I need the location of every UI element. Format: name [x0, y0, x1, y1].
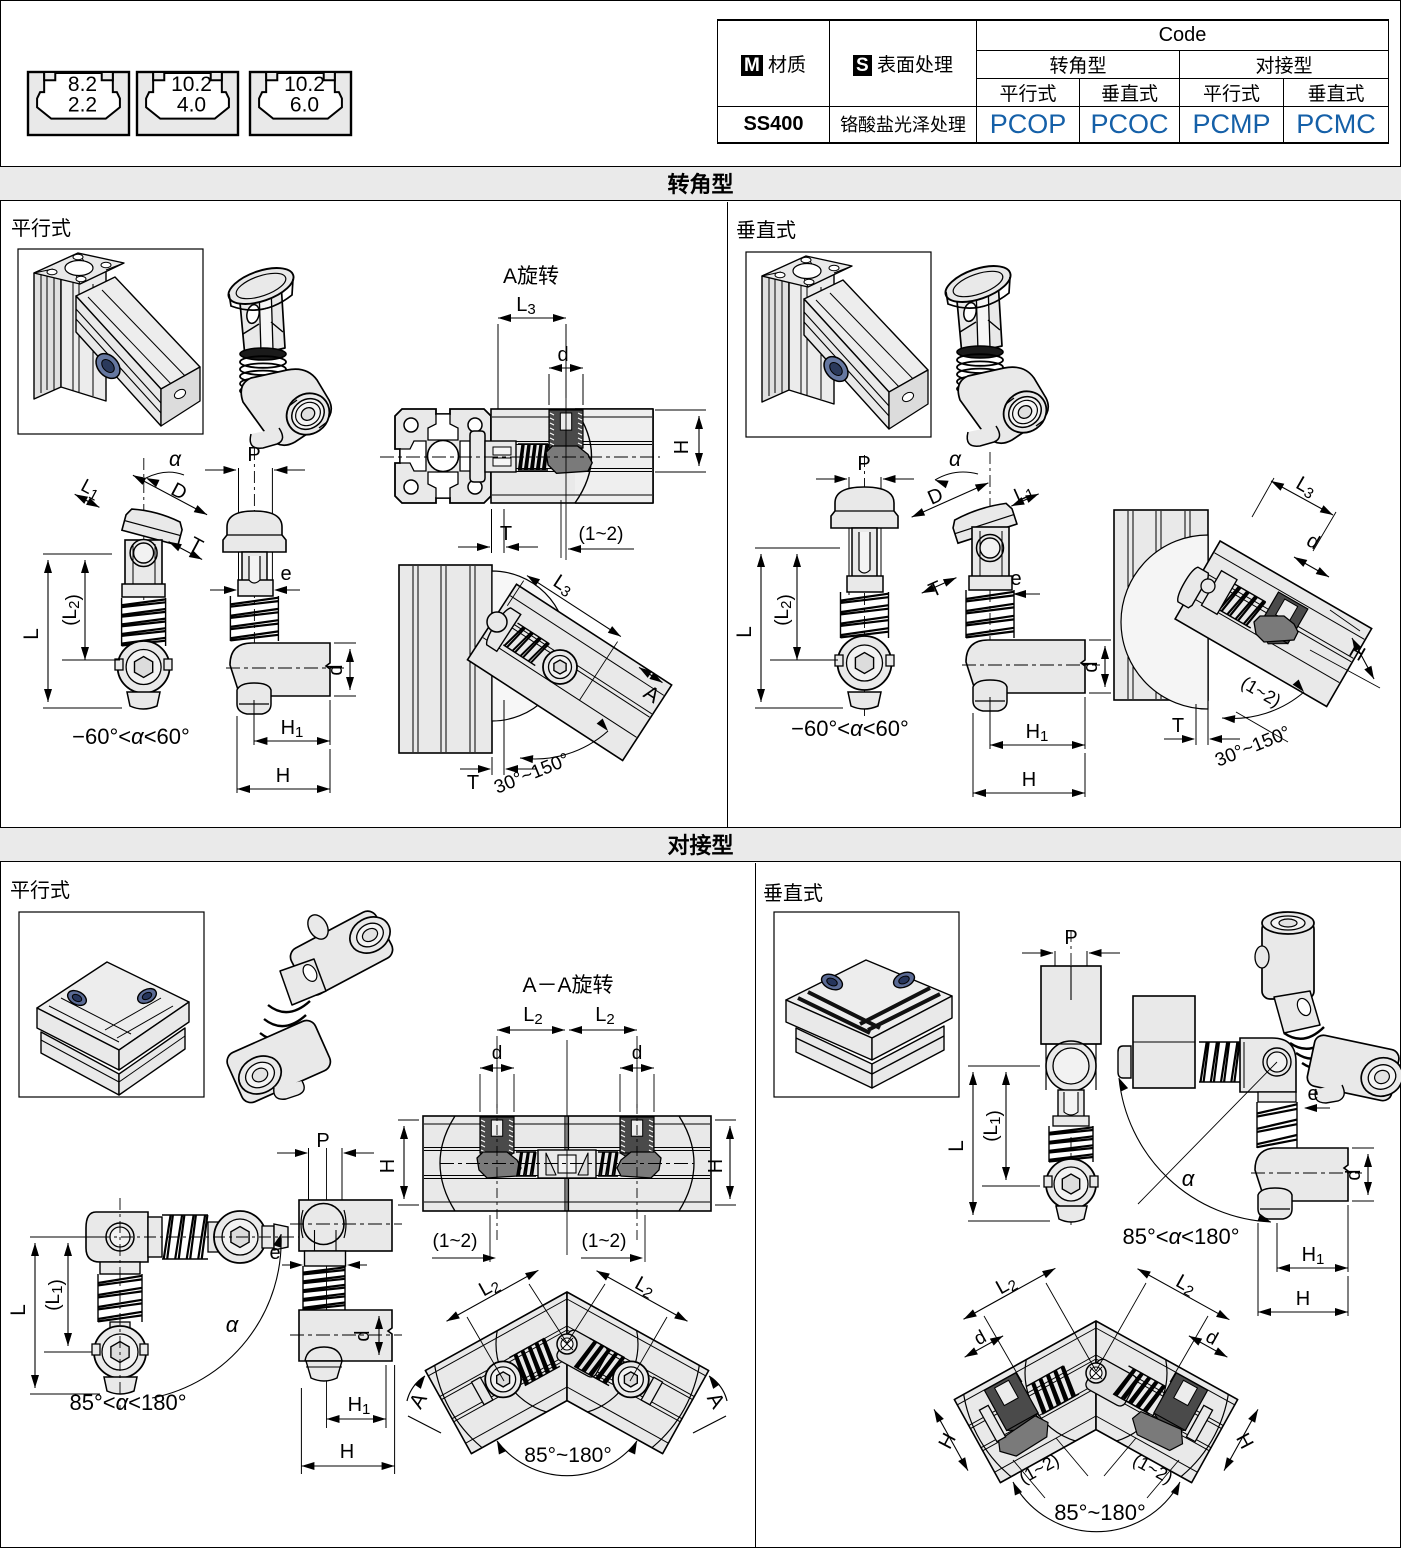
svg-text:α: α: [226, 1312, 240, 1337]
svg-text:T: T: [500, 523, 512, 545]
svg-text:d: d: [352, 1330, 374, 1341]
svg-text:85°<α<180°: 85°<α<180°: [69, 1390, 186, 1415]
svg-text:85°~180°: 85°~180°: [1054, 1500, 1146, 1525]
svg-text:10.2: 10.2: [284, 73, 325, 96]
svg-text:L2: L2: [475, 1272, 504, 1302]
svg-text:L2: L2: [523, 1004, 542, 1028]
svg-text:d: d: [557, 344, 568, 366]
svg-text:85°~180°: 85°~180°: [524, 1444, 611, 1467]
svg-text:H: H: [377, 1159, 399, 1173]
svg-text:2.2: 2.2: [68, 94, 97, 117]
svg-text:T: T: [467, 772, 479, 794]
svg-text:L3: L3: [516, 294, 535, 318]
svg-text:H1: H1: [1302, 1244, 1325, 1268]
svg-text:6.0: 6.0: [290, 94, 319, 117]
svg-text:T: T: [185, 533, 206, 558]
svg-text:L2: L2: [992, 1270, 1021, 1300]
svg-text:H: H: [935, 1430, 961, 1453]
svg-text:d: d: [325, 664, 347, 675]
svg-text:H1: H1: [1026, 721, 1049, 745]
svg-text:8.2: 8.2: [68, 73, 97, 96]
svg-text:(1~2): (1~2): [582, 1231, 627, 1252]
svg-text:H: H: [1022, 769, 1036, 791]
svg-text:H: H: [705, 1159, 727, 1173]
svg-text:d: d: [1343, 1169, 1365, 1180]
svg-text:L3: L3: [548, 570, 577, 601]
svg-text:d: d: [1303, 529, 1324, 554]
svg-text:P: P: [247, 444, 260, 466]
svg-text:L1: L1: [76, 475, 104, 504]
svg-text:(L1): (L1): [43, 1279, 67, 1311]
svg-text:e: e: [280, 563, 291, 585]
svg-text:(L2): (L2): [772, 594, 796, 626]
svg-text:H: H: [340, 1441, 354, 1463]
svg-text:30°~150°: 30°~150°: [1212, 722, 1293, 771]
svg-text:−60°<α<60°: −60°<α<60°: [791, 716, 909, 741]
svg-text:4.0: 4.0: [177, 94, 206, 117]
svg-text:A: A: [405, 1389, 432, 1413]
svg-text:d: d: [632, 1043, 643, 1064]
svg-text:T: T: [1172, 715, 1184, 737]
svg-text:A旋转: A旋转: [503, 265, 559, 288]
svg-text:(1~2): (1~2): [433, 1231, 478, 1252]
svg-text:L2: L2: [1171, 1270, 1200, 1300]
svg-text:(L1): (L1): [981, 1110, 1005, 1142]
svg-text:L3: L3: [1291, 472, 1320, 503]
svg-text:e: e: [1010, 568, 1021, 590]
svg-text:D: D: [924, 484, 946, 510]
svg-text:d: d: [1202, 1326, 1221, 1349]
svg-text:A: A: [702, 1389, 729, 1413]
svg-text:85°<α<180°: 85°<α<180°: [1122, 1224, 1239, 1249]
svg-text:H: H: [1231, 1430, 1257, 1453]
svg-text:L: L: [7, 1304, 30, 1316]
svg-text:H1: H1: [281, 717, 304, 741]
svg-text:P: P: [857, 453, 870, 475]
svg-text:P: P: [316, 1130, 329, 1152]
svg-text:L: L: [733, 626, 756, 638]
svg-text:e: e: [269, 1242, 280, 1264]
svg-text:α: α: [169, 448, 182, 471]
svg-text:A－A旋转: A－A旋转: [522, 974, 613, 997]
svg-text:(L2): (L2): [60, 594, 84, 626]
svg-text:L: L: [945, 1140, 968, 1152]
svg-text:d: d: [971, 1326, 990, 1349]
svg-text:d: d: [1080, 661, 1102, 672]
svg-text:(1~2): (1~2): [579, 524, 624, 545]
svg-text:−60°<α<60°: −60°<α<60°: [72, 724, 190, 749]
svg-text:L2: L2: [630, 1272, 659, 1302]
svg-text:L2: L2: [595, 1004, 614, 1028]
svg-text:T: T: [926, 577, 946, 602]
svg-text:H1: H1: [348, 1394, 371, 1418]
svg-text:α: α: [1182, 1166, 1196, 1191]
svg-text:L: L: [20, 628, 43, 640]
svg-text:d: d: [492, 1043, 503, 1064]
svg-text:H: H: [1296, 1288, 1310, 1310]
svg-text:P: P: [1064, 927, 1077, 949]
svg-text:10.2: 10.2: [171, 73, 212, 96]
svg-text:D: D: [167, 479, 190, 505]
svg-text:H: H: [276, 765, 290, 787]
svg-text:H: H: [671, 440, 693, 454]
svg-text:e: e: [1307, 1083, 1318, 1105]
svg-text:α: α: [949, 448, 962, 471]
